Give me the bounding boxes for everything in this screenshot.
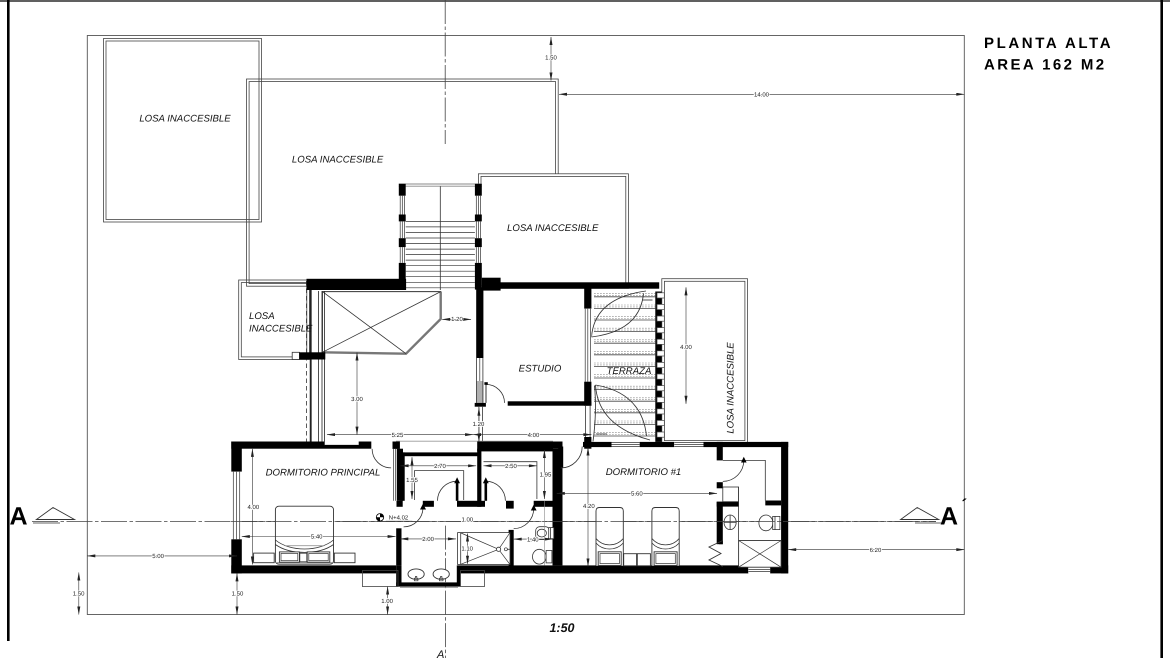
svg-text:1.50: 1.50 [232,590,244,597]
svg-text:DORMITORIO PRINCIPAL: DORMITORIO PRINCIPAL [266,468,381,479]
svg-text:5.00: 5.00 [152,553,164,560]
svg-text:2.00: 2.00 [422,536,434,543]
svg-text:1.20: 1.20 [451,316,463,323]
svg-text:2.50: 2.50 [505,463,517,470]
svg-text:LOSA INACCESIBLE: LOSA INACCESIBLE [292,155,384,166]
svg-text:LOSA INACCESIBLE: LOSA INACCESIBLE [726,342,737,434]
svg-text:DORMITORIO #1: DORMITORIO #1 [606,467,682,478]
svg-text:3.00: 3.00 [351,396,363,403]
svg-text:5.60: 5.60 [631,491,643,498]
svg-text:14.00: 14.00 [754,91,770,98]
svg-text:PLANTA ALTA: PLANTA ALTA [984,35,1113,52]
svg-text:ESTUDIO: ESTUDIO [519,364,562,375]
svg-text:4.00: 4.00 [680,344,692,351]
svg-text:INACCESIBLE: INACCESIBLE [249,324,313,335]
svg-text:LOSA INACCESIBLE: LOSA INACCESIBLE [139,114,231,125]
svg-text:1.55: 1.55 [406,477,418,484]
svg-text:1.20: 1.20 [473,421,485,428]
svg-text:LOSA: LOSA [249,311,275,322]
svg-text:1.95: 1.95 [540,472,552,479]
svg-text:1.50: 1.50 [545,55,557,62]
svg-text:TERRAZA: TERRAZA [607,366,652,377]
svg-text:6.20: 6.20 [870,547,882,554]
svg-text:1.40: 1.40 [527,536,539,543]
svg-text:1.00: 1.00 [381,598,393,605]
svg-text:5.25: 5.25 [392,432,404,439]
svg-text:5.40: 5.40 [311,534,323,541]
svg-text:2.70: 2.70 [434,463,446,470]
svg-text:1.50: 1.50 [73,590,85,597]
svg-text:N+4.02: N+4.02 [389,514,409,521]
svg-text:4.00: 4.00 [528,432,540,439]
svg-text:1.00: 1.00 [461,516,473,523]
svg-text:1.10: 1.10 [461,546,473,553]
svg-text:LOSA INACCESIBLE: LOSA INACCESIBLE [507,223,599,234]
svg-text:4.00: 4.00 [248,504,260,511]
svg-text:A: A [940,503,958,531]
svg-text:A: A [10,503,28,531]
svg-text:A: A [436,649,444,658]
svg-text:´: ´ [962,496,968,515]
svg-text:AREA 162 M2: AREA 162 M2 [984,57,1107,74]
svg-text:1:50: 1:50 [549,621,574,635]
svg-text:4.20: 4.20 [583,503,595,510]
